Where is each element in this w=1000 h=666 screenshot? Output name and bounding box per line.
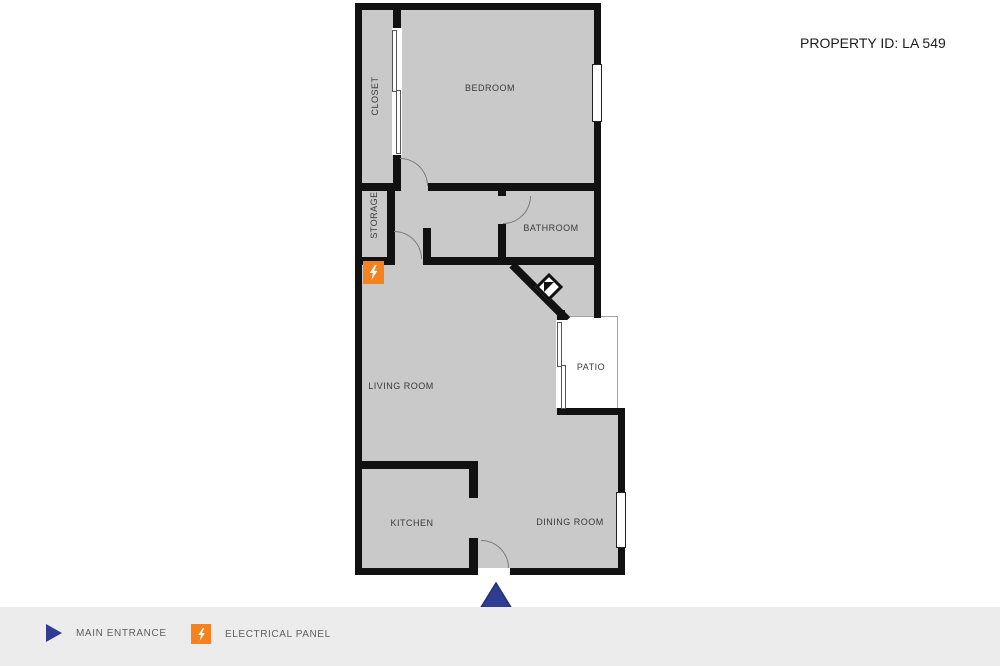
kitchen-label: KITCHEN bbox=[390, 518, 433, 528]
exterior-notch bbox=[601, 265, 618, 316]
wall-bathroom-left-bottom bbox=[498, 224, 506, 265]
closet-label: CLOSET bbox=[370, 76, 380, 115]
legend-electrical-panel: ELECTRICAL PANEL bbox=[191, 624, 331, 644]
wall-bedroom-divider-right bbox=[428, 183, 601, 191]
diamond-arrow-icon bbox=[544, 282, 554, 292]
electrical-panel-icon bbox=[363, 261, 384, 284]
wall-exterior-left bbox=[355, 3, 362, 575]
wall-exterior-bottom-left bbox=[355, 568, 478, 575]
wall-exterior-bottom-right bbox=[510, 568, 625, 575]
main-entrance-legend-label: MAIN ENTRANCE bbox=[76, 628, 167, 639]
bedroom-window bbox=[592, 64, 602, 122]
lightning-bolt-icon bbox=[196, 627, 207, 642]
lightning-bolt-icon bbox=[367, 264, 380, 281]
bathroom-label: BATHROOM bbox=[523, 223, 578, 233]
dining-window bbox=[616, 492, 626, 548]
wall-exterior-right-mid bbox=[594, 262, 601, 318]
wall-kitchen-right-upper bbox=[469, 461, 478, 498]
wall-exterior-top bbox=[355, 3, 601, 10]
patio-label: PATIO bbox=[577, 362, 605, 372]
patio-slider-panel bbox=[561, 365, 566, 409]
legend-main-entrance: MAIN ENTRANCE bbox=[46, 624, 167, 642]
wall-kitchen-top bbox=[362, 461, 474, 469]
main-entrance-legend-icon bbox=[46, 624, 62, 642]
wall-exterior-right-upper bbox=[594, 3, 601, 267]
closet-slider-panel bbox=[396, 90, 401, 154]
bedroom-label: BEDROOM bbox=[465, 83, 515, 93]
closet-slider-panel bbox=[392, 30, 397, 92]
electrical-panel-legend-label: ELECTRICAL PANEL bbox=[225, 629, 331, 640]
property-id-label: PROPERTY ID: LA 549 bbox=[800, 35, 946, 51]
floorplan-page: PROPERTY ID: LA 549 bbox=[0, 0, 1000, 666]
wall-closet-top-seg bbox=[393, 3, 401, 28]
living-room-label: LIVING ROOM bbox=[368, 381, 434, 391]
dining-room-label: DINING ROOM bbox=[536, 517, 604, 527]
wall-patio-bottom bbox=[557, 408, 625, 415]
legend-bar: MAIN ENTRANCE ELECTRICAL PANEL BLUEGROUN… bbox=[0, 607, 1000, 666]
electrical-panel-legend-icon bbox=[191, 624, 211, 644]
patio-slider-panel bbox=[557, 322, 562, 367]
wall-kitchen-right-lower bbox=[469, 538, 478, 571]
storage-label: STORAGE bbox=[369, 191, 379, 238]
